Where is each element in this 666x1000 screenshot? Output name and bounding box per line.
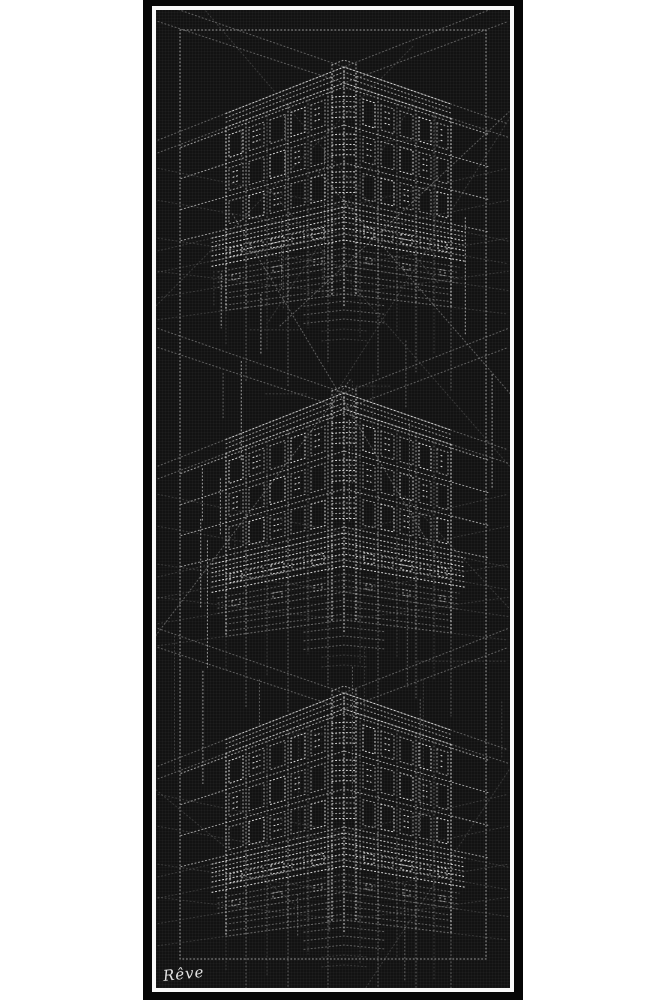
artwork-canvas: Rêve [156,10,510,988]
scarf-panel: Rêve [143,0,523,1000]
wireframe-svg [156,10,510,988]
page: Rêve [0,0,666,1000]
pinstripe-border: Rêve [152,6,514,992]
